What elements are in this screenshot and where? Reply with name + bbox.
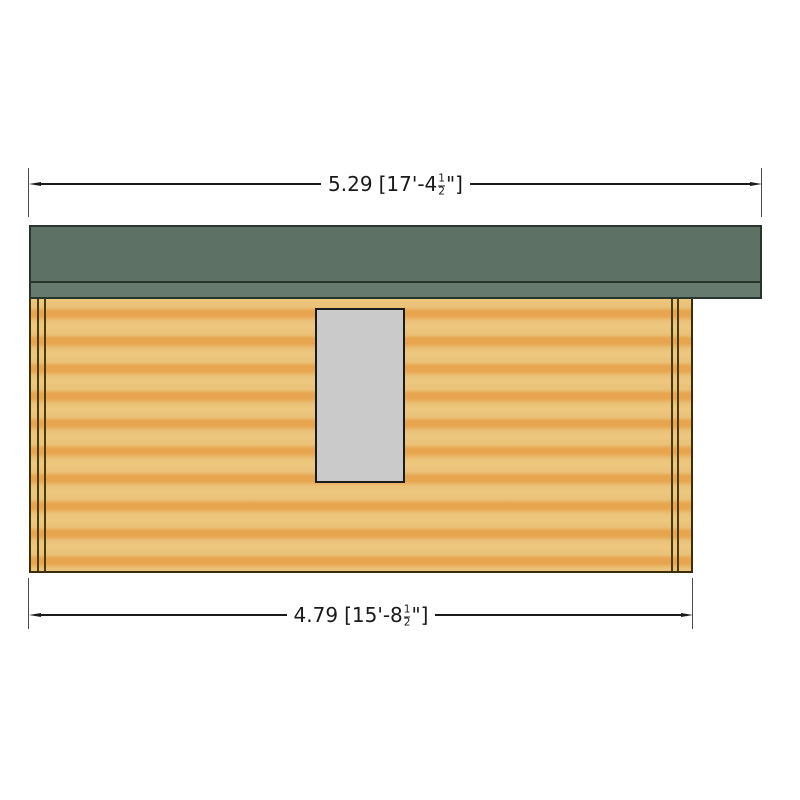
- dimension-line-segment: [41, 614, 287, 616]
- elevation-drawing-canvas: 5.29 [17'-4 1 2 "] 4.79 [15'-8 1: [0, 0, 800, 800]
- roof-fascia: [31, 281, 760, 297]
- top-dimension-imperial-suffix: "]: [446, 172, 463, 196]
- corner-joint-line: [677, 299, 679, 571]
- dimension-line-segment: [435, 614, 681, 616]
- dimension-line-segment: [41, 183, 321, 185]
- dimension-arrow-right-icon: [750, 182, 762, 186]
- top-dimension-imperial-prefix: [17'-4: [379, 172, 438, 196]
- bottom-dimension-metric: 4.79: [294, 603, 339, 627]
- bottom-dimension-label: 4.79 [15'-8 1 2 "]: [287, 603, 436, 627]
- window: [315, 308, 405, 483]
- top-dimension: 5.29 [17'-4 1 2 "]: [29, 170, 762, 198]
- corner-joint-line: [44, 299, 46, 571]
- bottom-dimension-imperial-prefix: [15'-8: [344, 603, 403, 627]
- top-dimension-fraction: 1 2: [438, 174, 445, 198]
- roof: [29, 225, 762, 299]
- bottom-dimension: 4.79 [15'-8 1 2 "]: [29, 601, 693, 629]
- dimension-arrow-right-icon: [681, 613, 693, 617]
- dimension-arrow-left-icon: [29, 613, 41, 617]
- bottom-dimension-fraction: 1 2: [404, 605, 411, 629]
- dimension-line-segment: [470, 183, 750, 185]
- corner-joint-line: [671, 299, 673, 571]
- corner-joint-line: [37, 299, 39, 571]
- top-dimension-metric: 5.29: [328, 172, 373, 196]
- bottom-dimension-imperial-suffix: "]: [411, 603, 428, 627]
- top-dimension-label: 5.29 [17'-4 1 2 "]: [321, 172, 470, 196]
- dimension-arrow-left-icon: [29, 182, 41, 186]
